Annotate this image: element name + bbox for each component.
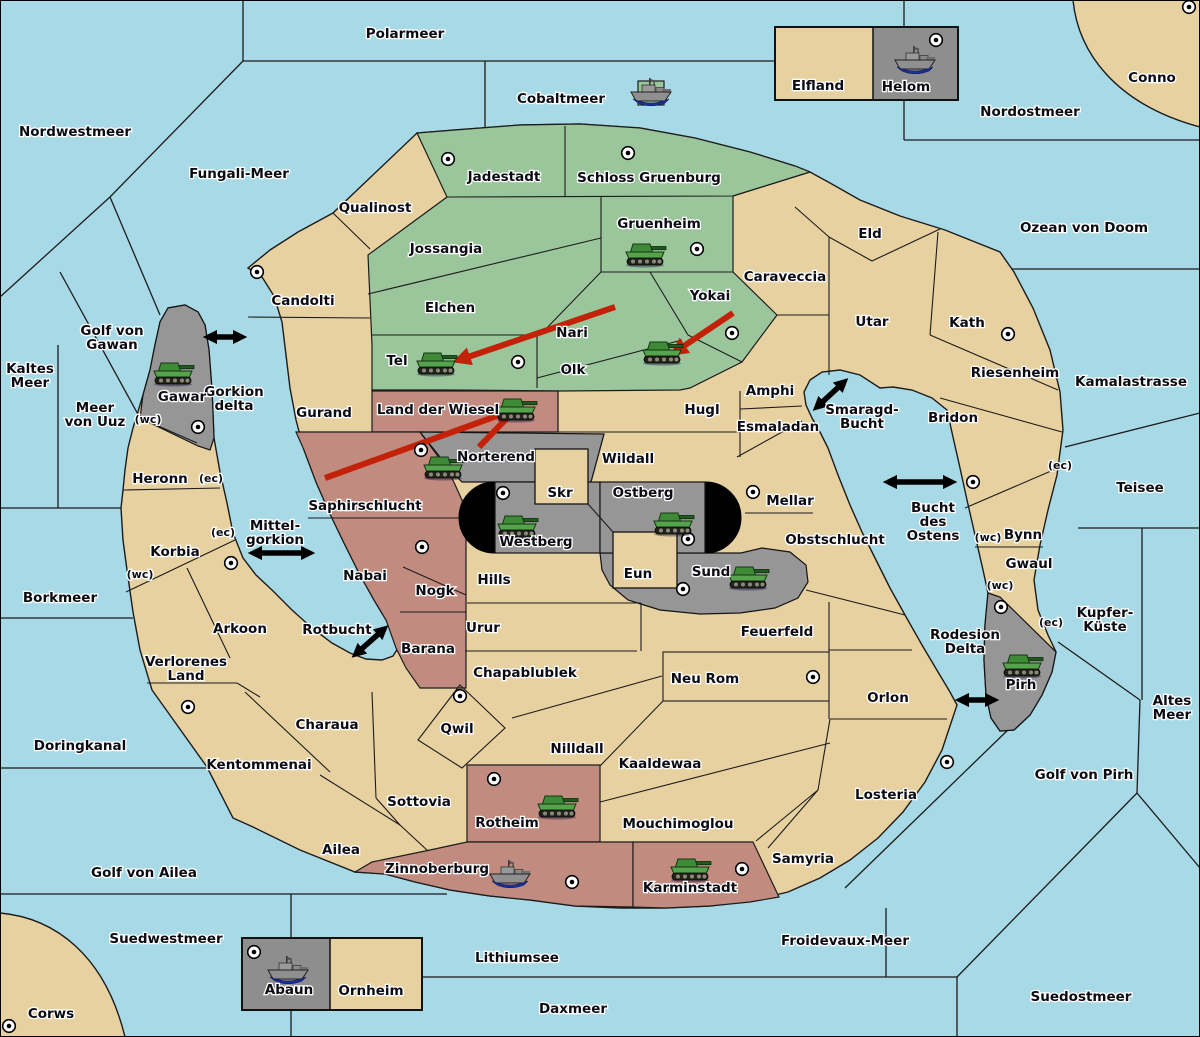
nogk-territory-label[interactable]: Nogk	[415, 583, 455, 599]
qualinost-territory-label[interactable]: Qualinost	[339, 200, 412, 216]
tank-unit-icon[interactable]	[643, 342, 683, 366]
capital-marker-icon	[941, 756, 954, 769]
zinnoberburg-territory-label[interactable]: Zinnoberburg	[385, 861, 489, 877]
saphirschlucht-territory-label[interactable]: Saphirschlucht	[308, 498, 422, 514]
capital-marker-icon	[248, 946, 261, 959]
capital-marker-icon	[1002, 328, 1015, 341]
sottovia-territory-label[interactable]: Sottovia	[387, 794, 451, 810]
charaua-territory-label[interactable]: Charaua	[295, 717, 358, 733]
ozean-von-doom-sea-label[interactable]: Ozean von Doom	[1020, 220, 1148, 236]
doringkanal-sea-label[interactable]: Doringkanal	[34, 738, 126, 754]
barana-territory-label[interactable]: Barana	[401, 641, 455, 657]
elchen-territory-label[interactable]: Elchen	[425, 300, 475, 316]
cobaltmeer-sea-label[interactable]: Cobaltmeer	[517, 91, 605, 107]
suedwestmeer-sea-label[interactable]: Suedwestmeer	[109, 931, 223, 947]
kentommenai-territory-label[interactable]: Kentommenai	[206, 757, 311, 773]
capital-marker-icon	[3, 1020, 16, 1033]
altes-meer-sea-label[interactable]: AltesMeer	[1153, 693, 1192, 723]
rotbucht-sea-label[interactable]: Rotbucht	[302, 622, 372, 638]
tel-territory-label[interactable]: Tel	[386, 353, 407, 369]
yokai-territory-label[interactable]: Yokai	[689, 288, 731, 304]
feuerfeld-territory-label[interactable]: Feuerfeld	[741, 624, 814, 640]
borkmeer-sea-label[interactable]: Borkmeer	[23, 590, 98, 606]
bynn-territory-label[interactable]: Bynn	[1004, 527, 1042, 543]
jossangia-territory-label[interactable]: Jossangia	[409, 241, 483, 257]
capital-marker-icon	[736, 863, 749, 876]
coast-type-marker-label: (ec)	[1039, 616, 1063, 629]
kamalastrasse-sea-label[interactable]: Kamalastrasse	[1075, 374, 1187, 390]
nordwestmeer-sea-label[interactable]: Nordwestmeer	[19, 124, 131, 140]
capital-marker-icon	[1183, 1, 1196, 14]
capital-marker-icon	[415, 444, 428, 457]
coast-type-marker-label: (ec)	[1048, 459, 1072, 472]
teisee-sea-label[interactable]: Teisee	[1116, 480, 1164, 496]
hugl-territory-label[interactable]: Hugl	[684, 402, 719, 418]
capital-marker-icon	[512, 356, 525, 369]
pirh-territory-label[interactable]: Pirh	[1006, 677, 1037, 693]
inset-abaun-ornheim	[242, 938, 422, 1010]
olk-territory-label[interactable]: Olk	[560, 362, 586, 378]
capital-marker-icon	[747, 486, 760, 499]
gwaul-territory-label[interactable]: Gwaul	[1006, 556, 1053, 572]
game-map[interactable]: PolarmeerNordwestmeerFungali-MeerCobaltm…	[0, 0, 1200, 1037]
capital-marker-icon	[995, 601, 1008, 614]
heronn-territory-label[interactable]: Heronn	[132, 471, 188, 487]
coast-type-marker-label: (wc)	[987, 579, 1014, 592]
capital-marker-icon	[488, 773, 501, 786]
game-map-stage: PolarmeerNordwestmeerFungali-MeerCobaltm…	[0, 0, 1200, 1037]
urur-territory-label[interactable]: Urur	[466, 620, 500, 636]
capital-marker-icon	[182, 701, 195, 714]
wildall-territory-label[interactable]: Wildall	[602, 451, 654, 467]
losteria-territory-label[interactable]: Losteria	[855, 787, 917, 803]
kath-territory-label[interactable]: Kath	[949, 315, 985, 331]
gruenheim-territory-label[interactable]: Gruenheim	[617, 216, 701, 232]
capital-marker-icon	[930, 34, 943, 47]
eun-territory-label[interactable]: Eun	[624, 566, 652, 582]
arkoon-territory-label[interactable]: Arkoon	[213, 621, 267, 637]
mellar-territory-label[interactable]: Mellar	[766, 493, 814, 509]
orlon-territory-label[interactable]: Orlon	[867, 690, 909, 706]
korbia-territory-label[interactable]: Korbia	[150, 544, 200, 560]
coast-type-marker-label: (ec)	[211, 526, 235, 539]
golf-von-ailea-sea-label[interactable]: Golf von Ailea	[91, 865, 197, 881]
hills-territory-label[interactable]: Hills	[477, 572, 510, 588]
skr-territory-label[interactable]: Skr	[547, 485, 573, 501]
jadestadt-territory-label[interactable]: Jadestadt	[467, 169, 541, 185]
qwil-territory-label[interactable]: Qwil	[440, 721, 473, 737]
coast-type-marker-label: (wc)	[135, 413, 162, 426]
daxmeer-sea-label[interactable]: Daxmeer	[539, 1001, 607, 1017]
tank-unit-icon[interactable]	[497, 399, 537, 423]
amphi-territory-label[interactable]: Amphi	[746, 383, 794, 399]
gurand-territory-label[interactable]: Gurand	[296, 405, 352, 421]
lithiumsee-sea-label[interactable]: Lithiumsee	[475, 950, 559, 966]
capital-marker-icon	[454, 690, 467, 703]
bridon-territory-label[interactable]: Bridon	[928, 410, 978, 426]
capital-marker-icon	[442, 153, 455, 166]
tank-unit-icon[interactable]	[626, 244, 666, 268]
capital-marker-icon	[251, 266, 264, 279]
elfland-territory-label[interactable]: Elfland	[792, 78, 844, 94]
territory-ornheim[interactable]	[330, 938, 422, 1010]
sund-territory-label[interactable]: Sund	[692, 564, 731, 580]
westberg-territory-label[interactable]: Westberg	[499, 534, 572, 550]
esmaladan-territory-label[interactable]: Esmaladan	[737, 419, 820, 435]
eld-territory-label[interactable]: Eld	[858, 226, 882, 242]
suedostmeer-sea-label[interactable]: Suedostmeer	[1031, 989, 1132, 1005]
capital-marker-icon	[497, 487, 510, 500]
tank-unit-icon[interactable]	[729, 567, 769, 591]
capital-marker-icon	[726, 327, 739, 340]
obstschlucht-territory-label[interactable]: Obstschlucht	[785, 532, 885, 548]
chapablublek-territory-label[interactable]: Chapablublek	[473, 665, 578, 681]
kaltes-meer-sea-label[interactable]: KaltesMeer	[6, 361, 54, 391]
nari-territory-label[interactable]: Nari	[556, 325, 588, 341]
capital-marker-icon	[192, 421, 205, 434]
kupfer-küste-sea-label[interactable]: Kupfer-Küste	[1077, 605, 1134, 635]
capital-marker-icon	[416, 541, 429, 554]
ostberg-territory-label[interactable]: Ostberg	[612, 485, 673, 501]
riesenheim-territory-label[interactable]: Riesenheim	[971, 365, 1059, 381]
capital-marker-icon	[677, 583, 690, 596]
golf-von-gawan-sea-label[interactable]: Golf vonGawan	[80, 323, 143, 353]
samyria-territory-label[interactable]: Samyria	[772, 851, 834, 867]
nabai-territory-label[interactable]: Nabai	[343, 568, 387, 584]
caraveccia-territory-label[interactable]: Caraveccia	[744, 269, 826, 285]
coast-type-marker-label: (ec)	[199, 472, 223, 485]
tank-unit-icon[interactable]	[538, 796, 578, 820]
capital-marker-icon	[622, 147, 635, 160]
coast-type-marker-label: (wc)	[127, 568, 154, 581]
capital-marker-icon	[691, 243, 704, 256]
mouchimoglou-territory-label[interactable]: Mouchimoglou	[622, 816, 733, 832]
capital-marker-icon	[967, 476, 980, 489]
neu-rom-territory-label[interactable]: Neu Rom	[671, 671, 740, 687]
corws-territory-label[interactable]: Corws	[28, 1006, 74, 1022]
mittel-gorkion-sea-label[interactable]: Mittel-gorkion	[246, 518, 304, 548]
ornheim-territory-label[interactable]: Ornheim	[338, 983, 403, 999]
fungali-meer-sea-label[interactable]: Fungali-Meer	[189, 166, 289, 182]
land-der-wiesel-territory-label[interactable]: Land der Wiesel	[377, 402, 499, 418]
polarmeer-sea-label[interactable]: Polarmeer	[366, 26, 445, 42]
conno-territory-label[interactable]: Conno	[1128, 70, 1176, 86]
tank-unit-icon[interactable]	[154, 363, 194, 387]
nilldall-territory-label[interactable]: Nilldall	[550, 741, 603, 757]
capital-marker-icon	[807, 671, 820, 684]
capital-marker-icon	[566, 876, 579, 889]
abaun-territory-label[interactable]: Abaun	[265, 982, 313, 998]
tank-unit-icon[interactable]	[417, 353, 457, 377]
tank-unit-icon[interactable]	[1003, 655, 1043, 679]
kaaldewaa-territory-label[interactable]: Kaaldewaa	[619, 756, 702, 772]
helom-territory-label[interactable]: Helom	[882, 79, 930, 95]
gawar-territory-label[interactable]: Gawar	[158, 389, 207, 405]
capital-marker-icon	[225, 557, 238, 570]
norterend-territory-label[interactable]: Norterend	[457, 449, 535, 465]
coast-type-marker-label: (wc)	[975, 531, 1002, 544]
candolti-territory-label[interactable]: Candolti	[271, 293, 334, 309]
golf-von-pirh-sea-label[interactable]: Golf von Pirh	[1035, 767, 1134, 783]
ailea-territory-label[interactable]: Ailea	[322, 842, 360, 858]
tank-unit-icon[interactable]	[671, 859, 711, 883]
tank-unit-icon[interactable]	[654, 513, 694, 537]
froidevaux-meer-sea-label[interactable]: Froidevaux-Meer	[781, 933, 909, 949]
utar-territory-label[interactable]: Utar	[855, 314, 889, 330]
schloss-gruenburg-territory-label[interactable]: Schloss Gruenburg	[577, 170, 721, 186]
nordostmeer-sea-label[interactable]: Nordostmeer	[980, 104, 1080, 120]
rotheim-territory-label[interactable]: Rotheim	[475, 815, 539, 831]
karminstadt-territory-label[interactable]: Karminstadt	[643, 880, 738, 896]
